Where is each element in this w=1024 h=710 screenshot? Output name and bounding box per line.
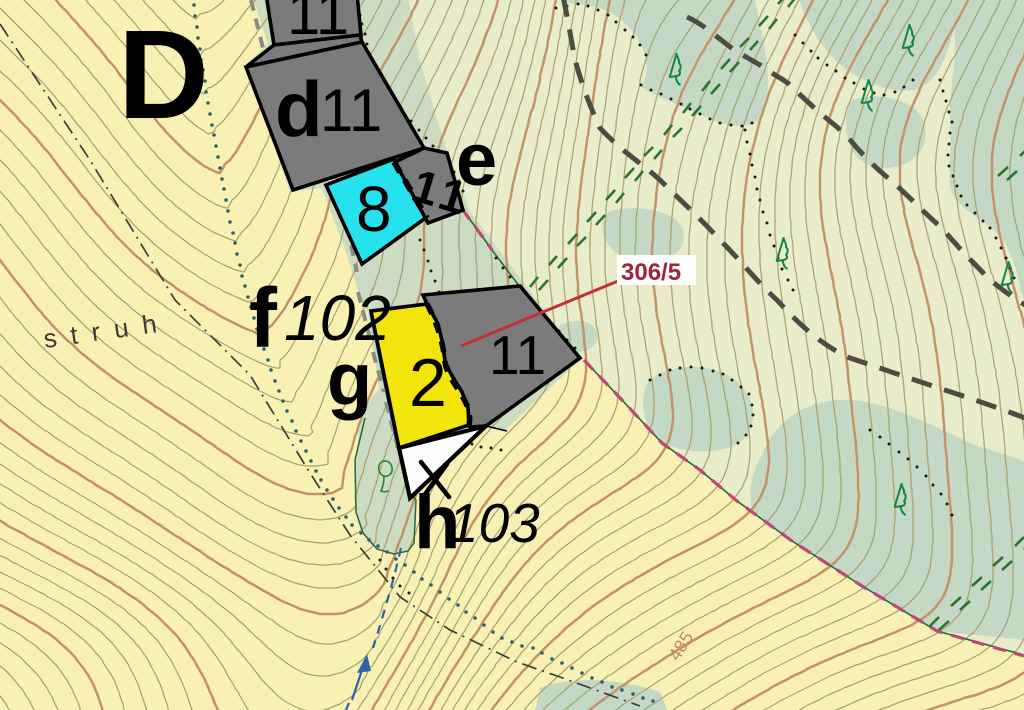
svg-text:11: 11 [287,0,349,47]
svg-text:11: 11 [489,324,546,386]
svg-text:2: 2 [409,345,447,421]
svg-text:d: d [275,65,323,153]
svg-text:f: f [249,271,278,365]
svg-text:e: e [456,118,497,201]
svg-text:103: 103 [448,492,540,554]
svg-text:g: g [327,338,372,421]
svg-text:306/5: 306/5 [621,259,681,286]
svg-text:8: 8 [356,173,392,245]
svg-text:11: 11 [320,77,382,144]
svg-text:D: D [118,4,209,145]
